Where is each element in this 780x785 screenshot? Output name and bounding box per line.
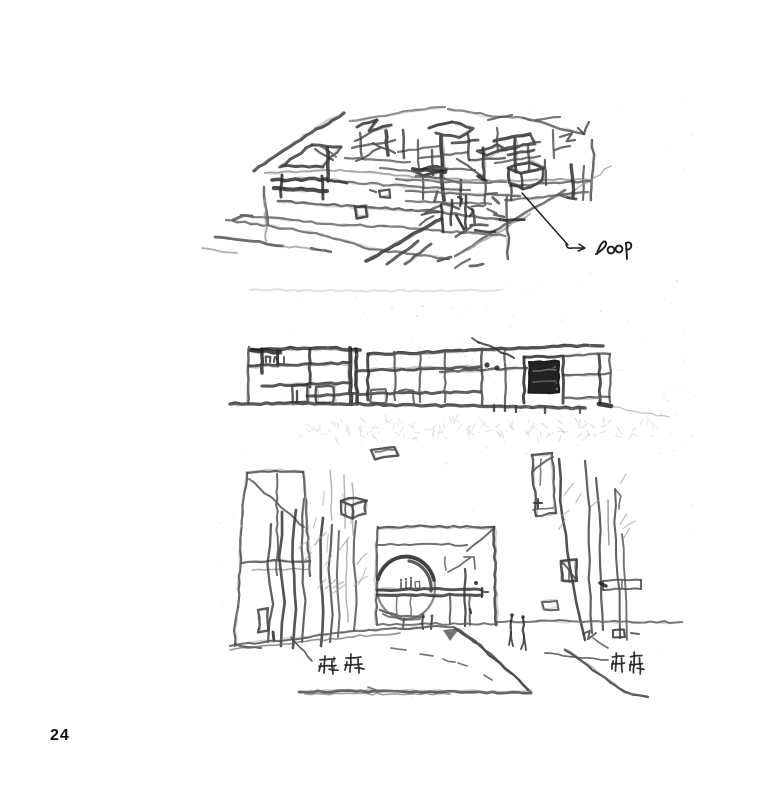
svg-text:24: 24 xyxy=(50,727,70,744)
